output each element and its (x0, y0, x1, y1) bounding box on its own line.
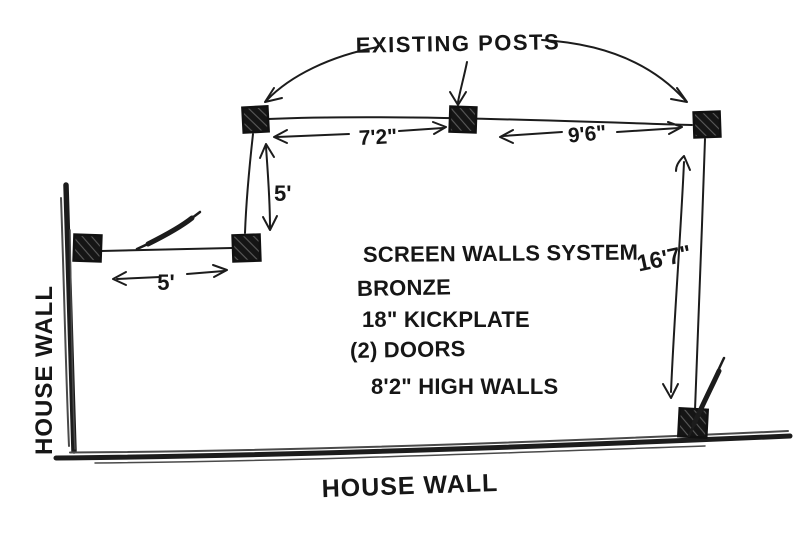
door-stroke-left (137, 212, 200, 249)
post-top-right (694, 112, 721, 138)
house-wall-left-label: HOUSE WALL (31, 285, 58, 455)
dim-5-vertical-label: 5' (274, 181, 291, 206)
post-top-left (242, 106, 268, 132)
post-left-middle (233, 235, 261, 262)
dim-7-2-label: 7'2" (358, 125, 397, 150)
sketch-canvas: EXISTING POSTS 7'2" 9'6" 5' 5' 16'7" SCR… (0, 0, 800, 548)
post-top-middle (450, 107, 477, 133)
house-wall-bottom-label: HOUSE WALL (321, 469, 499, 503)
house-wall-left-line (61, 185, 75, 451)
spec-notes: SCREEN WALLS SYSTEM BRONZE 18" KICKPLATE… (350, 240, 638, 399)
spec-note-high-walls: 8'2" HIGH WALLS (371, 374, 558, 399)
existing-posts-label: EXISTING POSTS (356, 29, 561, 58)
spec-note-doors: (2) DOORS (350, 336, 466, 363)
dim-9-6-label: 9'6" (567, 121, 607, 147)
spec-note-kickplate: 18" KICKPLATE (362, 307, 530, 332)
dim-16-7-label: 16'7" (635, 240, 694, 277)
spec-note-system: SCREEN WALLS SYSTEM (363, 240, 638, 267)
post-left-wall (74, 235, 102, 262)
dim-5-horizontal-label: 5' (157, 270, 174, 295)
spec-note-bronze: BRONZE (357, 274, 452, 301)
dim-16-7-arrow (663, 156, 690, 398)
screen-wall-plan-drawing: EXISTING POSTS 7'2" 9'6" 5' 5' 16'7" SCR… (0, 0, 800, 548)
